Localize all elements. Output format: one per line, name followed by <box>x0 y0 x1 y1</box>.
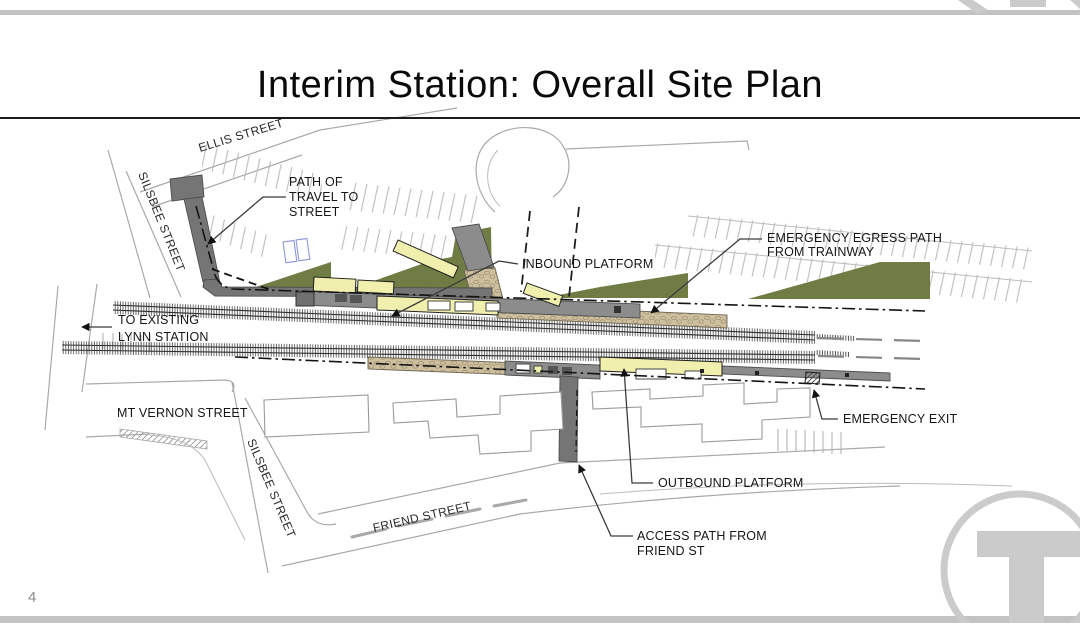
outbound-platform-label: OUTBOUND PLATFORM <box>658 476 804 490</box>
green-area <box>543 273 688 298</box>
loop-road-inner <box>488 150 500 206</box>
building-footprint <box>592 383 810 442</box>
loop-road <box>476 128 569 212</box>
equipment-box <box>548 366 558 374</box>
slide-title: Interim Station: Overall Site Plan <box>0 64 1080 107</box>
leader-access-path <box>579 465 633 536</box>
to-existing-label-1: TO EXISTING <box>118 313 199 327</box>
equipment-box <box>335 294 347 302</box>
mt-vernon-median-hatch <box>120 429 207 449</box>
access-path-label-1: ACCESS PATH FROM <box>637 529 767 543</box>
friend-street-label: FRIEND STREET <box>372 499 473 535</box>
canopy-structure <box>313 277 356 293</box>
emergency-exit-structure <box>805 372 820 384</box>
access-path-label-2: FRIEND ST <box>637 544 705 558</box>
top-divider-bar <box>0 10 1080 15</box>
path-of-travel-label-2: TRAVEL TO <box>289 190 358 204</box>
slide: ELLIS STREET SILSBEE STREET MT VERNON ST… <box>0 0 1080 623</box>
emergency-egress-label-1: EMERGENCY EGRESS PATH <box>767 231 942 245</box>
left-street-edge-2 <box>45 286 58 430</box>
left-street-edge-1 <box>82 284 97 392</box>
path-of-travel-label-1: PATH OF <box>289 175 343 189</box>
equipment-box <box>428 301 450 310</box>
rail-corridor-outbound <box>62 341 924 364</box>
t-logo-letter <box>977 531 1080 623</box>
track-extension <box>818 338 924 341</box>
buildings <box>264 383 810 454</box>
equipment-box <box>350 295 362 303</box>
inbound-platform-label: INBOUND PLATFORM <box>522 257 653 271</box>
stall-row <box>348 182 480 224</box>
canopy-structure <box>357 280 394 294</box>
building-footprint <box>393 392 563 454</box>
bottom-divider-bar <box>0 616 1080 623</box>
accessible-stalls <box>283 238 310 262</box>
fence-post <box>845 373 849 377</box>
fence-post <box>755 371 759 375</box>
title-rule <box>0 117 1080 119</box>
t-logo-fragment-shape <box>1070 0 1080 9</box>
upper-boundary-line <box>566 141 749 150</box>
fence-post <box>700 369 704 373</box>
emergency-egress-label-2: FROM TRAINWAY <box>767 245 875 259</box>
equipment-box <box>562 367 572 375</box>
ellis-street-label: ELLIS STREET <box>197 116 286 155</box>
track-extension <box>818 356 924 359</box>
mt-vernon-street-label: MT VERNON STREET <box>117 406 248 420</box>
emergency-exit-label: EMERGENCY EXIT <box>843 412 958 426</box>
leader-emergency-exit <box>814 390 838 419</box>
to-existing-label-2: LYNN STATION <box>118 330 209 344</box>
mbta-t-logo <box>944 494 1080 623</box>
equipment-box <box>614 306 621 313</box>
equipment-box <box>516 364 530 373</box>
building-footprint <box>264 395 369 437</box>
mt-vernon-north-edge <box>86 380 234 392</box>
equipment-box <box>455 302 473 311</box>
path-of-travel-label-3: STREET <box>289 205 340 219</box>
equipment-box <box>296 292 314 306</box>
page-number: 4 <box>28 589 36 606</box>
equipment-box <box>486 303 500 311</box>
silsbee-lower-sidewalk <box>150 435 245 540</box>
stall-row <box>207 213 268 259</box>
accessible-stall <box>296 238 310 260</box>
accessible-stall <box>283 240 297 262</box>
t-logo-fragment-shape <box>1010 0 1046 7</box>
